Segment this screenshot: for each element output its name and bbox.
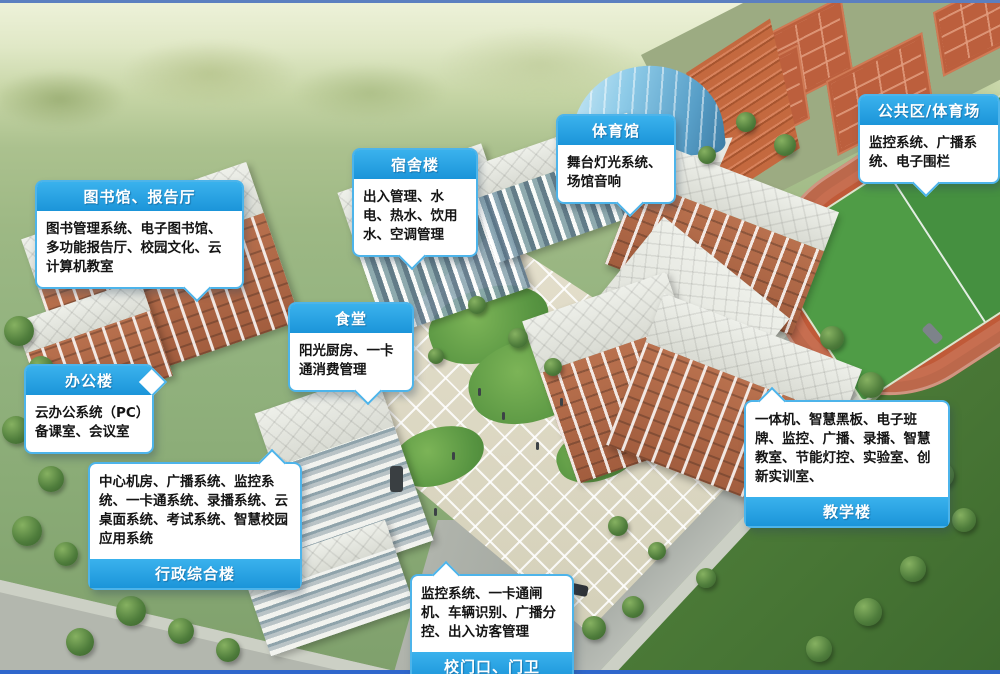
tree — [4, 316, 34, 346]
plaza-statue — [390, 466, 403, 492]
pedestrian — [478, 388, 481, 396]
tree — [66, 628, 94, 656]
tree — [508, 328, 528, 348]
tree — [698, 146, 716, 164]
callout-public-area: 公共区/体育场 监控系统、广播系统、电子围栏 — [858, 94, 1000, 184]
callout-office: 办公楼 云办公系统（PC）备课室、会议室 — [24, 364, 154, 454]
tree — [168, 618, 194, 644]
tree — [696, 568, 716, 588]
callout-admin-complex: 中心机房、广播系统、监控系统、一卡通系统、录播系统、云桌面系统、考试系统、智慧校… — [88, 462, 302, 590]
tree — [774, 134, 796, 156]
callout-dormitory: 宿舍楼 出入管理、水电、热水、饮用水、空调管理 — [352, 148, 478, 257]
callout-public-area-title: 公共区/体育场 — [860, 96, 998, 125]
tree — [428, 348, 444, 364]
tree — [116, 596, 146, 626]
callout-office-body: 云办公系统（PC）备课室、会议室 — [26, 395, 152, 452]
callout-gymnasium-title: 体育馆 — [558, 116, 674, 145]
campus-aerial-rendering: 图书馆、报告厅 图书管理系统、电子图书馆、多功能报告厅、校园文化、云计算机教室 … — [0, 0, 1000, 674]
callout-canteen-title: 食堂 — [290, 304, 412, 333]
tree — [854, 598, 882, 626]
tree — [648, 542, 666, 560]
callout-teaching-building-title: 教学楼 — [746, 497, 948, 526]
tree — [216, 638, 240, 662]
tree — [622, 596, 644, 618]
callout-admin-complex-title: 行政综合楼 — [90, 559, 300, 588]
callout-school-gate: 监控系统、一卡通闸机、车辆识别、广播分控、出入访客管理 校门口、门卫 — [410, 574, 574, 674]
tree — [900, 556, 926, 582]
top-border-line — [0, 0, 1000, 3]
callout-library-body: 图书管理系统、电子图书馆、多功能报告厅、校园文化、云计算机教室 — [37, 211, 242, 287]
callout-canteen-body: 阳光厨房、一卡通消费管理 — [290, 333, 412, 390]
callout-gymnasium: 体育馆 舞台灯光系统、场馆音响 — [556, 114, 676, 204]
callout-library-title: 图书馆、报告厅 — [37, 182, 242, 211]
tree — [736, 112, 756, 132]
tree — [468, 296, 486, 314]
pedestrian — [434, 508, 437, 516]
callout-school-gate-body: 监控系统、一卡通闸机、车辆识别、广播分控、出入访客管理 — [412, 576, 572, 652]
callout-canteen: 食堂 阳光厨房、一卡通消费管理 — [288, 302, 414, 392]
tree — [858, 372, 884, 398]
tree — [820, 326, 844, 350]
pedestrian — [560, 398, 563, 406]
callout-dormitory-title: 宿舍楼 — [354, 150, 476, 179]
callout-school-gate-title: 校门口、门卫 — [412, 652, 572, 674]
callout-dormitory-body: 出入管理、水电、热水、饮用水、空调管理 — [354, 179, 476, 255]
callout-office-title: 办公楼 — [26, 366, 152, 395]
callout-teaching-building: 一体机、智慧黑板、电子班牌、监控、广播、录播、智慧教室、节能灯控、实验室、创新实… — [744, 400, 950, 528]
pedestrian — [536, 442, 539, 450]
tree — [608, 516, 628, 536]
tree — [582, 616, 606, 640]
tree — [806, 636, 832, 662]
tree — [38, 466, 64, 492]
pedestrian — [502, 412, 505, 420]
callout-gymnasium-body: 舞台灯光系统、场馆音响 — [558, 145, 674, 202]
pedestrian — [452, 452, 455, 460]
tree — [544, 358, 562, 376]
callout-library: 图书馆、报告厅 图书管理系统、电子图书馆、多功能报告厅、校园文化、云计算机教室 — [35, 180, 244, 289]
callout-teaching-building-body: 一体机、智慧黑板、电子班牌、监控、广播、录播、智慧教室、节能灯控、实验室、创新实… — [746, 402, 948, 497]
tree — [54, 542, 78, 566]
tree — [952, 508, 976, 532]
tree — [12, 516, 42, 546]
callout-admin-complex-body: 中心机房、广播系统、监控系统、一卡通系统、录播系统、云桌面系统、考试系统、智慧校… — [90, 464, 300, 559]
